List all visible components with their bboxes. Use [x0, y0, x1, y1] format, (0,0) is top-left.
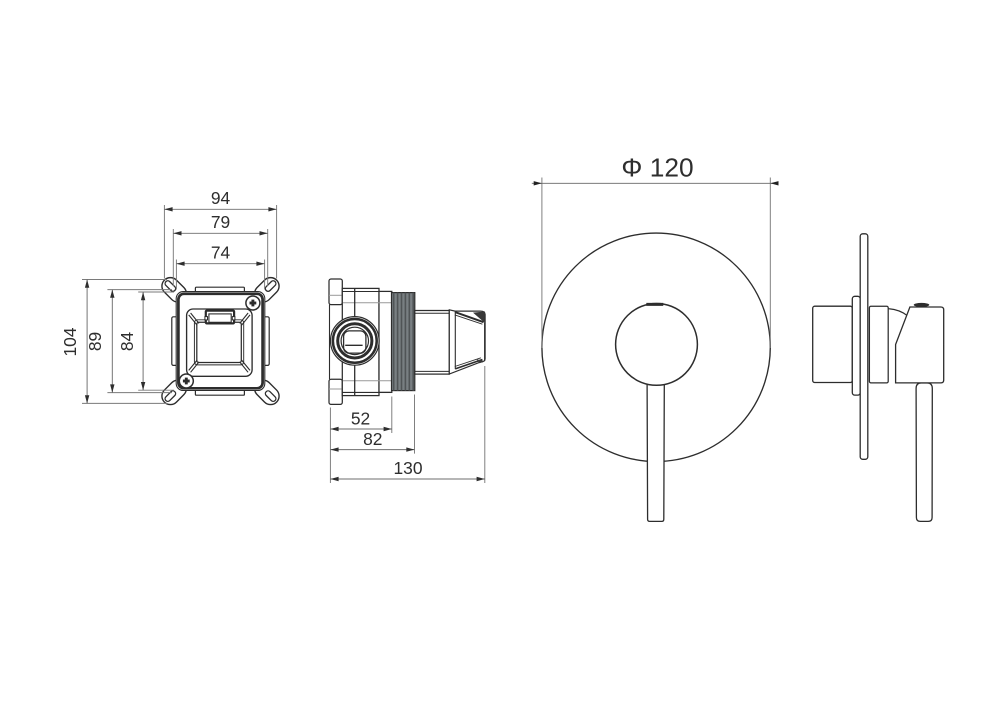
svg-text:94: 94 — [211, 188, 231, 208]
svg-text:82: 82 — [363, 429, 382, 449]
svg-text:104: 104 — [60, 327, 80, 356]
svg-text:52: 52 — [351, 409, 370, 429]
svg-text:89: 89 — [85, 332, 105, 351]
svg-text:84: 84 — [117, 332, 137, 352]
svg-text:79: 79 — [211, 212, 230, 232]
svg-text:Φ 120: Φ 120 — [621, 152, 693, 182]
svg-text:74: 74 — [211, 242, 231, 262]
svg-text:130: 130 — [393, 458, 422, 478]
